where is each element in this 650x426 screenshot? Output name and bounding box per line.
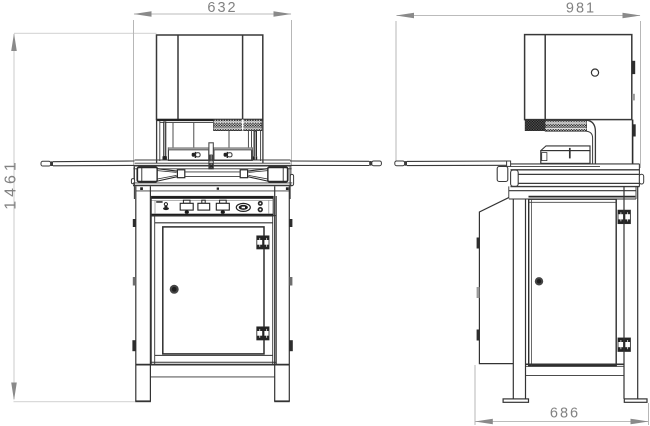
svg-text:632: 632	[207, 0, 237, 16]
svg-text:1461: 1461	[3, 158, 20, 210]
svg-text:686: 686	[550, 406, 580, 422]
svg-text:981: 981	[566, 1, 596, 17]
